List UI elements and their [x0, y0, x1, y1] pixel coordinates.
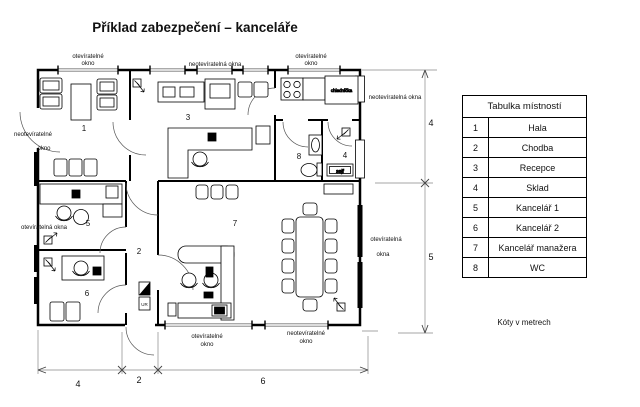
- fridge-label: chladnička: [331, 88, 353, 93]
- meeting-area: [282, 203, 337, 311]
- svg-text:neotevíratelné: neotevíratelné: [14, 132, 53, 138]
- room-number-8: 8: [297, 152, 302, 161]
- svg-text:otevíratelná okna: otevíratelná okna: [21, 225, 68, 231]
- floorplan-page: { "title": "Příklad zabezpečení – kancel…: [0, 0, 640, 407]
- room-table-header: Tabulka místností: [463, 96, 587, 118]
- svg-text:okno: okno: [304, 61, 318, 67]
- room-number-7: 7: [233, 219, 238, 228]
- table-row: 8WC: [463, 258, 587, 278]
- detector-icon: [334, 298, 345, 311]
- toilet: [301, 164, 317, 177]
- waiting-chairs: [54, 159, 97, 176]
- counter: [303, 78, 325, 100]
- office1-furniture: [40, 184, 122, 225]
- recepce-furniture: [158, 79, 270, 178]
- meeting-table: [296, 217, 323, 297]
- safe-label: sejf: [336, 169, 344, 175]
- office2-furniture: [50, 256, 104, 321]
- kitchenette: chladnička: [281, 76, 358, 104]
- page-title: Příklad zabezpečení – kanceláře: [92, 20, 298, 35]
- svg-text:otevíratelná: otevíratelná: [370, 237, 402, 243]
- svg-text:okno: okno: [200, 342, 214, 348]
- dim-bottom-left: 4: [75, 379, 80, 389]
- svg-text:neotevíratelná okna: neotevíratelná okna: [369, 95, 422, 101]
- units-note: Kóty v metrech: [497, 318, 550, 327]
- corridor-equipment: UR: [139, 282, 150, 310]
- table-row: 7Kancelář manažera: [463, 238, 587, 258]
- room-number-2: 2: [137, 247, 142, 256]
- room-table: Tabulka místností 1Hala 2Chodba 3Recepce…: [462, 95, 587, 278]
- panel-label: UR: [141, 302, 148, 307]
- table-row: 2Chodba: [463, 138, 587, 158]
- svg-text:otevíratelné: otevíratelné: [295, 54, 327, 60]
- room-number-4: 4: [343, 151, 348, 160]
- svg-text:okno: okno: [299, 339, 313, 345]
- sklad-items: sejf: [327, 164, 353, 176]
- table-row: 4Sklad: [463, 178, 587, 198]
- detector-icon: [44, 233, 57, 244]
- svg-text:otevíratelné: otevíratelné: [72, 54, 104, 60]
- detector-icon: [44, 258, 55, 271]
- table-row: 3Recepce: [463, 158, 587, 178]
- wc-fixtures: [301, 135, 322, 177]
- svg-text:neotevíratelná okna: neotevíratelná okna: [189, 62, 242, 68]
- room-number-1: 1: [82, 124, 87, 133]
- dim-bottom-mid: 2: [136, 375, 141, 385]
- manager-office-furniture: [168, 184, 353, 320]
- svg-text:neotevíratelné: neotevíratelné: [287, 331, 326, 337]
- dim-bottom-right: 6: [260, 376, 265, 386]
- toilet-tank: [317, 163, 322, 176]
- room-number-5: 5: [86, 219, 91, 228]
- svg-text:okna: okna: [376, 252, 390, 258]
- dim-right-top: 4: [428, 118, 433, 128]
- detector-icon: [133, 79, 144, 92]
- detector-icon: [337, 128, 350, 139]
- room-number-3: 3: [186, 113, 191, 122]
- cabinet: [324, 184, 353, 194]
- table-row: 6Kancelář 2: [463, 218, 587, 238]
- svg-text:otevíratelné: otevíratelné: [191, 334, 223, 340]
- svg-text:okno: okno: [81, 61, 95, 67]
- table-row: 1Hala: [463, 118, 587, 138]
- room-number-6: 6: [85, 289, 90, 298]
- table-row: 5Kancelář 1: [463, 198, 587, 218]
- hala-table: [71, 84, 91, 120]
- dim-right-bottom: 5: [428, 252, 433, 262]
- hala-furniture: [40, 78, 117, 176]
- svg-text:okno: okno: [37, 146, 51, 152]
